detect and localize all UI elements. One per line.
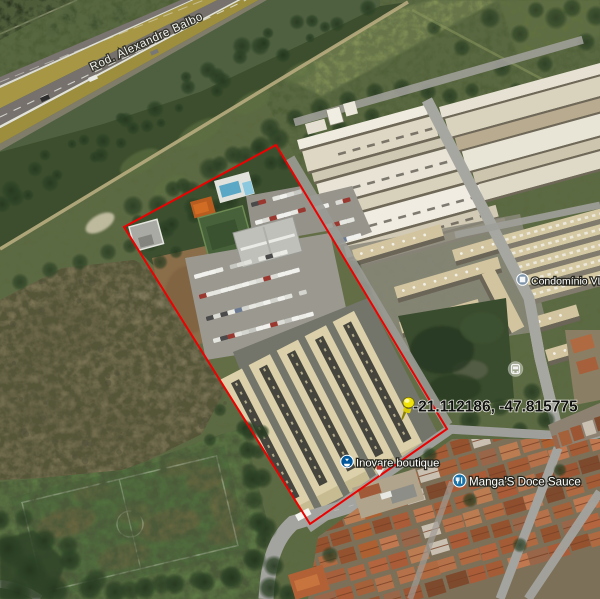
svg-text:Condomínio VL: Condomínio VL — [531, 276, 600, 288]
svg-text:Inovare boutique: Inovare boutique — [356, 458, 439, 470]
svg-text:Manga'S Doce Sauce: Manga'S Doce Sauce — [469, 476, 581, 489]
svg-text:-21.112186, -47.815775: -21.112186, -47.815775 — [413, 399, 578, 416]
